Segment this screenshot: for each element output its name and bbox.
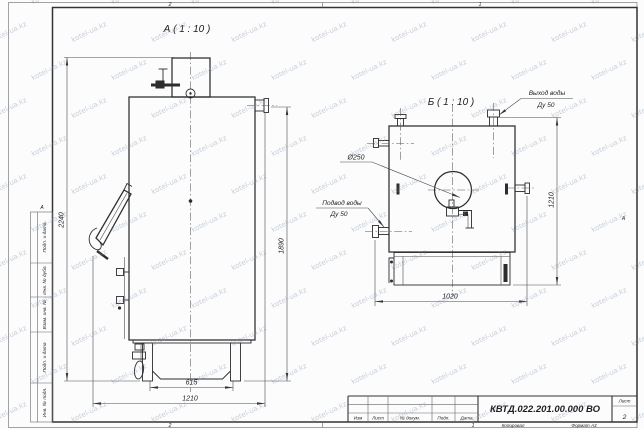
view-a: А ( 1 : 10 ) [59, 24, 292, 407]
drawing-svg: 2 1 2 1 А А Копировал Формат А3 Подп. и … [0, 0, 644, 430]
tb-sheet-number: 2 [622, 414, 627, 421]
svg-text:Ø250: Ø250 [346, 155, 364, 162]
strip-cell-podp-data-1: Подп. и дата [42, 222, 48, 252]
format-label: Формат А3 [571, 423, 597, 428]
svg-text:Ду 50: Ду 50 [330, 211, 348, 218]
zone-side-left: А [39, 205, 44, 211]
svg-text:Подвод воды: Подвод воды [322, 199, 362, 207]
drawing-designation: КВТД.022.201.00.000 ВО [490, 404, 601, 415]
tb-col-data: Дата [459, 416, 473, 421]
sheet-frame: 2 1 2 1 А А Копировал Формат А3 [9, 2, 638, 429]
tb-col-list: Лист [371, 416, 384, 421]
strip-cell-inv-podl: Инв. № подл. [42, 388, 48, 418]
view-b-title: Б ( 1 : 10 ) [428, 97, 475, 108]
zone-bottom-right: 1 [472, 423, 475, 429]
dim-b-diameter: Ø250 [340, 155, 460, 198]
svg-text:615: 615 [186, 380, 198, 387]
zone-side-right: А [621, 216, 626, 222]
view-a-title: А ( 1 : 10 ) [163, 24, 211, 35]
dim-a-1210: 1210 [93, 112, 265, 407]
dim-a-2240: 2240 [59, 58, 175, 382]
label-outlet: Выход воды Ду 50 [499, 89, 573, 115]
title-block: Изм Лист № докум. Подп. Дата КВТД.022.20… [348, 396, 637, 422]
drawing-sheet: 2 1 2 1 А А Копировал Формат А3 Подп. и … [0, 0, 644, 430]
svg-text:1210: 1210 [549, 192, 556, 208]
tb-col-izm: Изм [354, 416, 363, 421]
tb-col-podp: Подп. [437, 416, 449, 421]
svg-text:1210: 1210 [182, 396, 198, 403]
dim-b-1210: 1210 [500, 118, 561, 286]
label-inlet: Подвод воды Ду 50 [316, 199, 384, 227]
side-strip: Подп. и дата Инв. № дубл. Взам. инв. № П… [31, 212, 53, 422]
tb-sheet-label: Лист [618, 399, 631, 404]
strip-cell-vzam-inv: Взам. инв. № [42, 300, 48, 330]
copied-label: Копировал [502, 423, 525, 428]
zone-bottom-left: 2 [168, 423, 172, 429]
svg-text:Ду 50: Ду 50 [537, 102, 555, 109]
view-b: Б ( 1 : 10 ) [316, 89, 573, 306]
zone-top-left: 2 [168, 2, 172, 8]
svg-text:2240: 2240 [59, 212, 66, 229]
tb-col-dokum: № докум. [400, 416, 420, 421]
strip-cell-inv-dubl: Инв. № дубл. [42, 265, 48, 295]
strip-cell-podp-data-2: Подп. и дата [42, 342, 48, 372]
svg-text:Выход воды: Выход воды [529, 89, 566, 97]
dim-a-615: 615 [150, 380, 233, 392]
svg-text:1020: 1020 [442, 294, 458, 301]
dim-b-1020: 1020 [375, 196, 527, 306]
svg-text:1890: 1890 [279, 238, 286, 254]
zone-top-right: 1 [479, 2, 482, 8]
